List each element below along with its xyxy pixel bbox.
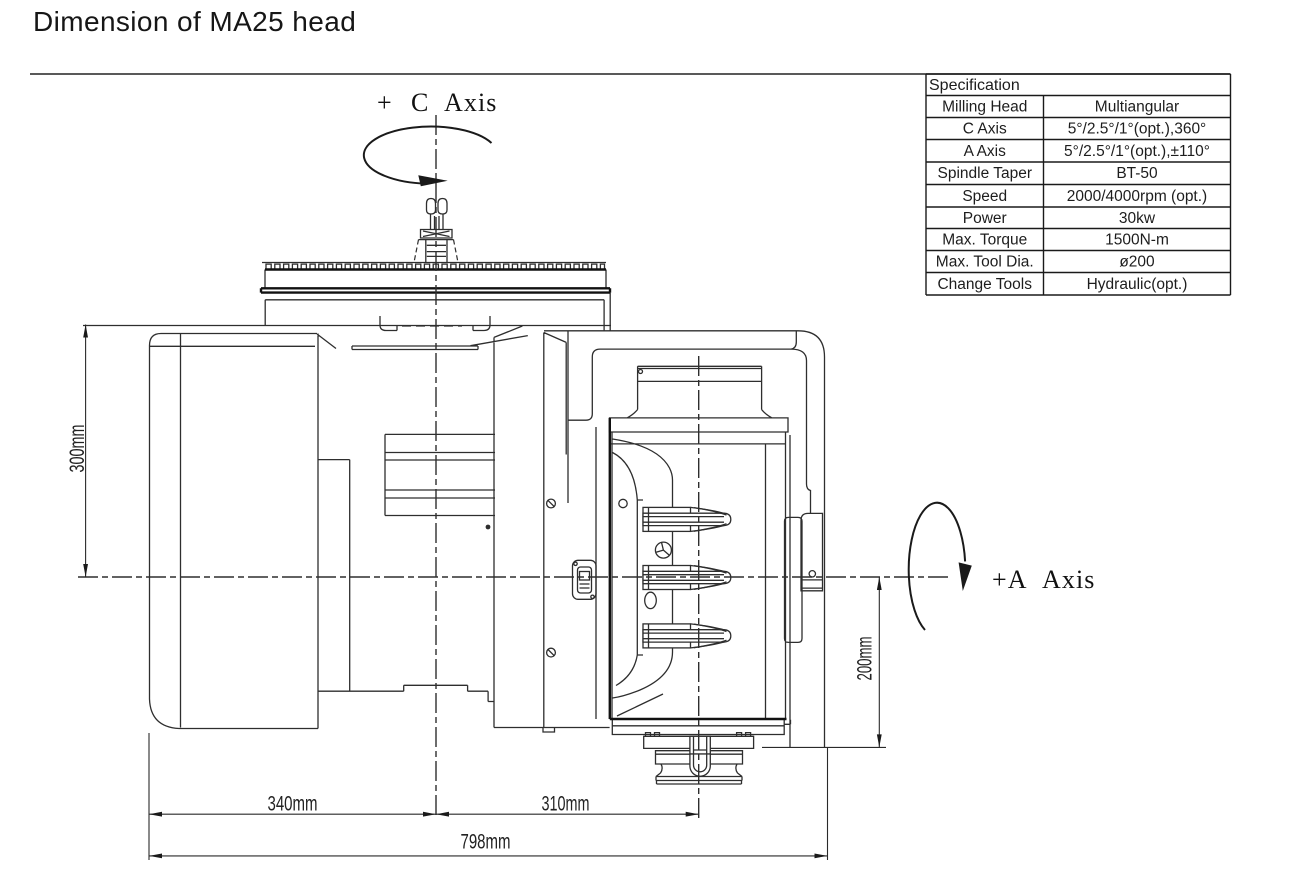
svg-text:300mm: 300mm: [66, 425, 89, 473]
svg-text:340mm: 340mm: [268, 793, 318, 816]
svg-text:Axis: Axis: [1042, 565, 1096, 594]
svg-text:Multiangular: Multiangular: [1095, 99, 1179, 116]
svg-text:798mm: 798mm: [461, 831, 511, 854]
svg-text:310mm: 310mm: [542, 793, 590, 816]
svg-text:ø200: ø200: [1119, 254, 1155, 271]
svg-text:2000/4000rpm (opt.): 2000/4000rpm (opt.): [1067, 188, 1207, 205]
svg-text:Speed: Speed: [962, 188, 1007, 205]
svg-text:A Axis: A Axis: [964, 143, 1006, 160]
svg-text:Max. Torque: Max. Torque: [942, 232, 1027, 249]
svg-text:200mm: 200mm: [854, 637, 877, 681]
svg-text:Change Tools: Change Tools: [937, 276, 1032, 293]
svg-text:5°/2.5°/1°(opt.),±110°: 5°/2.5°/1°(opt.),±110°: [1064, 143, 1210, 160]
svg-text:BT-50: BT-50: [1116, 165, 1158, 182]
svg-text:Spindle Taper: Spindle Taper: [937, 165, 1032, 182]
svg-text:1500N-m: 1500N-m: [1105, 232, 1169, 249]
svg-text:+: +: [377, 88, 393, 117]
svg-text:Hydraulic(opt.): Hydraulic(opt.): [1087, 276, 1188, 293]
svg-text:Axis: Axis: [444, 88, 498, 117]
svg-text:C: C: [411, 88, 429, 117]
svg-text:+A: +A: [992, 565, 1028, 594]
svg-text:C Axis: C Axis: [963, 121, 1007, 138]
svg-text:30kw: 30kw: [1119, 210, 1156, 227]
svg-text:Power: Power: [963, 210, 1007, 227]
svg-text:5°/2.5°/1°(opt.),360°: 5°/2.5°/1°(opt.),360°: [1068, 121, 1207, 138]
svg-text:Dimension of MA25 head: Dimension of MA25 head: [33, 6, 356, 37]
svg-text:Specification: Specification: [929, 77, 1020, 94]
svg-text:Max. Tool Dia.: Max. Tool Dia.: [936, 254, 1034, 271]
svg-text:Milling Head: Milling Head: [942, 99, 1027, 116]
